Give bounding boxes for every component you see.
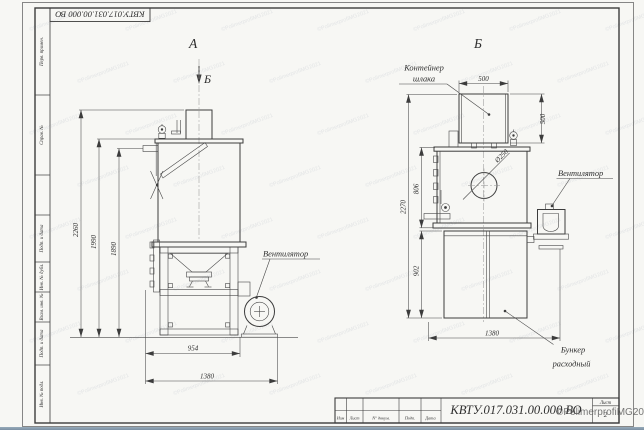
dim-806: 806 [413,183,421,194]
dim-902: 902 [413,265,421,276]
dim-1990: 1990 [90,235,98,250]
drawing-canvas: Изм Лист N° докум. Подп. Дата КВТУ.017.0… [0,0,644,430]
cabinet-top-flange-right [434,147,530,151]
fan-callout-right: Вентилятор [551,169,613,207]
cabinet-bottom-flange [152,242,246,247]
margin-field-inv-podl: Инв. № подл. [35,365,50,423]
corner-watermark: ©PolimerprofiMG2021 [556,407,644,418]
view-a-label: А [188,36,198,51]
hopper-callout: Бункер расходный [504,310,592,369]
dim-2260: 2260 [72,223,80,238]
sheet-frame [23,3,634,427]
fan-callout-left: Вентилятор [255,250,320,299]
title-col-data: Дата [424,416,435,421]
container-callout: Контейнер шлака [399,64,490,116]
margin-field-vzam-inv: Взам. инв. № [35,292,50,322]
hopper-label-2: расходный [552,360,592,369]
top-stamp-text: КВТУ.017.031.00.000 ВО [50,8,150,22]
container-label-2: шлака [413,75,435,84]
dim-500-h: 500 [539,113,547,124]
dim-2270: 2270 [400,200,408,215]
dim-hole-250: Ø250 [493,147,511,165]
dim-1380-right: 1380 [485,329,500,337]
section-b-label: Б [203,72,211,86]
door-hinges [150,240,160,292]
view-a: А Б [70,36,320,384]
top-stub [449,131,458,147]
top-valve [158,124,166,138]
container-bracket [172,120,181,134]
drawing-sheet: ©PolimerprofiMG2021©PolimerprofiMG2021©P… [0,0,644,430]
sheet-word: Лист [599,401,612,406]
cabinet-bottom-flange-right [433,223,531,228]
title-col-doc: N° докум. [371,416,390,421]
fan-label-left: Вентилятор [263,250,308,259]
machine-right-view [424,94,569,318]
view-b-label: Б [473,36,482,51]
margin-field-inv-dubl: Инв. № дубл. [35,262,50,292]
side-pipe-stub [143,146,158,152]
section-arrow-b: Б [196,66,211,86]
support-stand [160,247,238,335]
title-col-list: Лист [348,416,359,421]
hopper-label-1: Бункер [560,346,585,355]
margin-field-sprav-n: Справ. № [35,95,50,175]
hopper-funnel [171,254,228,288]
margin-field-podp-data-1: Подп. и дата [35,215,50,262]
fan-right-view [527,204,569,249]
hopper-cabinet [444,231,527,318]
margin-field-podp-data-2: Подп. и дата [35,322,50,365]
margin-field-perv-primen: Перв. примен. [35,8,50,95]
fan-left-view [238,282,278,337]
dim-500-w: 500 [478,75,489,83]
container-label-1: Контейнер [403,64,444,73]
dim-1890: 1890 [110,242,118,257]
title-col-izm: Изм [336,416,345,421]
view-b: Б [399,36,613,369]
title-col-podp: Подп. [404,416,416,421]
open-hatch [161,143,208,179]
machine-left-view [70,110,298,337]
dim-1380-left: 1380 [200,372,215,380]
dim-954: 954 [188,345,199,353]
hatch-linkage [151,171,164,199]
dimensions-right: 500 500 2270 806 902 1380 Ø250 [400,75,560,341]
fan-label-right: Вентилятор [558,169,603,178]
